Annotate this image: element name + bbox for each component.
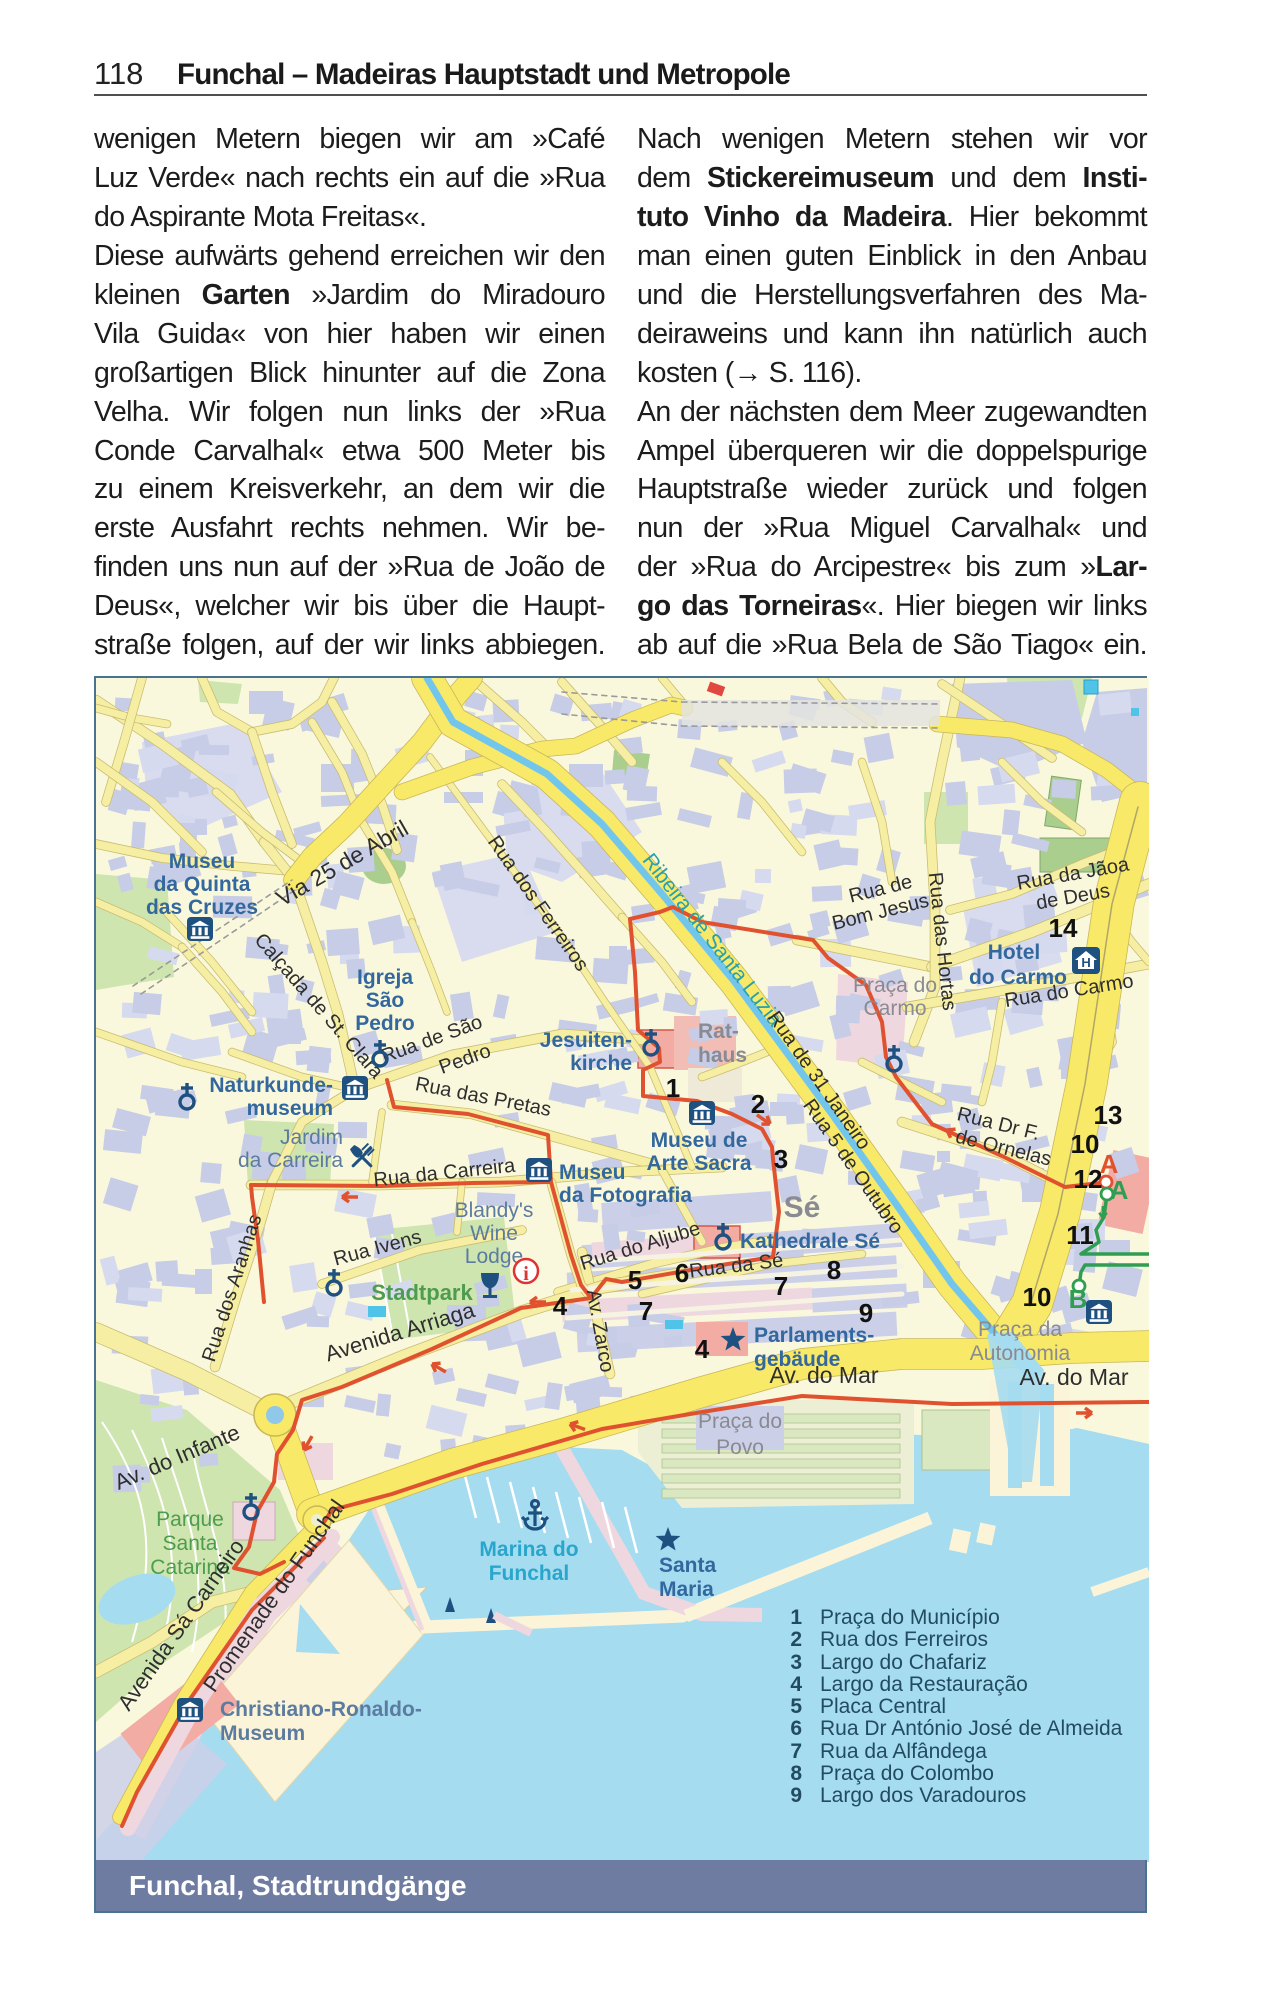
svg-text:Hotel: Hotel — [988, 941, 1041, 964]
svg-text:9: 9 — [859, 1298, 873, 1328]
svg-text:12: 12 — [1074, 1164, 1103, 1194]
svg-text:São: São — [366, 989, 405, 1012]
svg-text:Av. do Mar: Av. do Mar — [769, 1362, 878, 1388]
svg-text:H: H — [1081, 955, 1090, 970]
svg-text:Praça do: Praça do — [698, 1410, 782, 1433]
svg-text:haus: haus — [698, 1044, 747, 1067]
svg-text:Museu de: Museu de — [651, 1129, 748, 1152]
svg-text:das Cruzes: das Cruzes — [146, 896, 258, 919]
svg-text:Jesuiten-: Jesuiten- — [540, 1029, 632, 1052]
svg-text:Blandy's: Blandy's — [455, 1199, 534, 1222]
svg-text:2: 2 — [751, 1089, 765, 1119]
svg-text:Arte Sacra: Arte Sacra — [646, 1152, 751, 1175]
svg-text:Museum: Museum — [220, 1722, 305, 1745]
svg-text:3: 3 — [774, 1144, 788, 1174]
svg-text:1: 1 — [666, 1073, 680, 1103]
svg-text:13: 13 — [1094, 1100, 1123, 1130]
svg-text:Praça da: Praça da — [978, 1318, 1062, 1341]
svg-text:Autonomia: Autonomia — [970, 1342, 1071, 1365]
svg-text:7: 7 — [639, 1296, 653, 1326]
svg-text:Av. do Mar: Av. do Mar — [1019, 1364, 1128, 1390]
svg-text:7: 7 — [774, 1271, 788, 1301]
svg-text:Carmo: Carmo — [863, 997, 926, 1020]
svg-text:6: 6 — [675, 1258, 689, 1288]
svg-text:Parlaments-: Parlaments- — [754, 1324, 874, 1347]
svg-text:Rat-: Rat- — [698, 1020, 739, 1043]
svg-text:B: B — [1069, 1284, 1088, 1314]
svg-text:8: 8 — [827, 1255, 841, 1285]
svg-text:14: 14 — [1049, 913, 1078, 943]
svg-text:5: 5 — [628, 1265, 642, 1295]
svg-text:Parque: Parque — [156, 1508, 224, 1531]
svg-text:Sé: Sé — [784, 1191, 821, 1224]
svg-text:Museu: Museu — [169, 850, 236, 873]
svg-text:Christiano-Ronaldo-: Christiano-Ronaldo- — [220, 1698, 422, 1721]
svg-text:Kathedrale Sé: Kathedrale Sé — [740, 1230, 880, 1253]
svg-text:4: 4 — [553, 1291, 568, 1321]
svg-text:10: 10 — [1023, 1282, 1052, 1312]
svg-text:Povo: Povo — [716, 1436, 764, 1459]
svg-text:Igreja: Igreja — [357, 966, 413, 989]
svg-text:Funchal: Funchal — [489, 1562, 570, 1585]
svg-text:A: A — [1110, 1175, 1129, 1205]
svg-text:da Quinta: da Quinta — [154, 873, 251, 896]
svg-text:11: 11 — [1066, 1220, 1094, 1250]
svg-text:Marina do: Marina do — [479, 1538, 578, 1561]
svg-text:Naturkunde-: Naturkunde- — [209, 1074, 333, 1097]
svg-text:Jardim: Jardim — [280, 1126, 343, 1149]
svg-text:kirche: kirche — [570, 1052, 632, 1075]
svg-text:i: i — [523, 1263, 529, 1285]
svg-text:Museu: Museu — [559, 1161, 626, 1184]
svg-text:4: 4 — [695, 1334, 710, 1364]
svg-text:da Carreira: da Carreira — [238, 1149, 343, 1172]
svg-text:Praça do: Praça do — [853, 974, 937, 997]
svg-text:Pedro: Pedro — [355, 1012, 415, 1035]
svg-text:museum: museum — [247, 1097, 333, 1120]
svg-text:Wine: Wine — [470, 1222, 518, 1245]
svg-text:Santa: Santa — [163, 1532, 218, 1555]
svg-text:10: 10 — [1071, 1129, 1100, 1159]
svg-text:Maria: Maria — [659, 1578, 714, 1601]
svg-text:da Fotografia: da Fotografia — [559, 1184, 692, 1207]
svg-text:Santa: Santa — [659, 1554, 717, 1577]
